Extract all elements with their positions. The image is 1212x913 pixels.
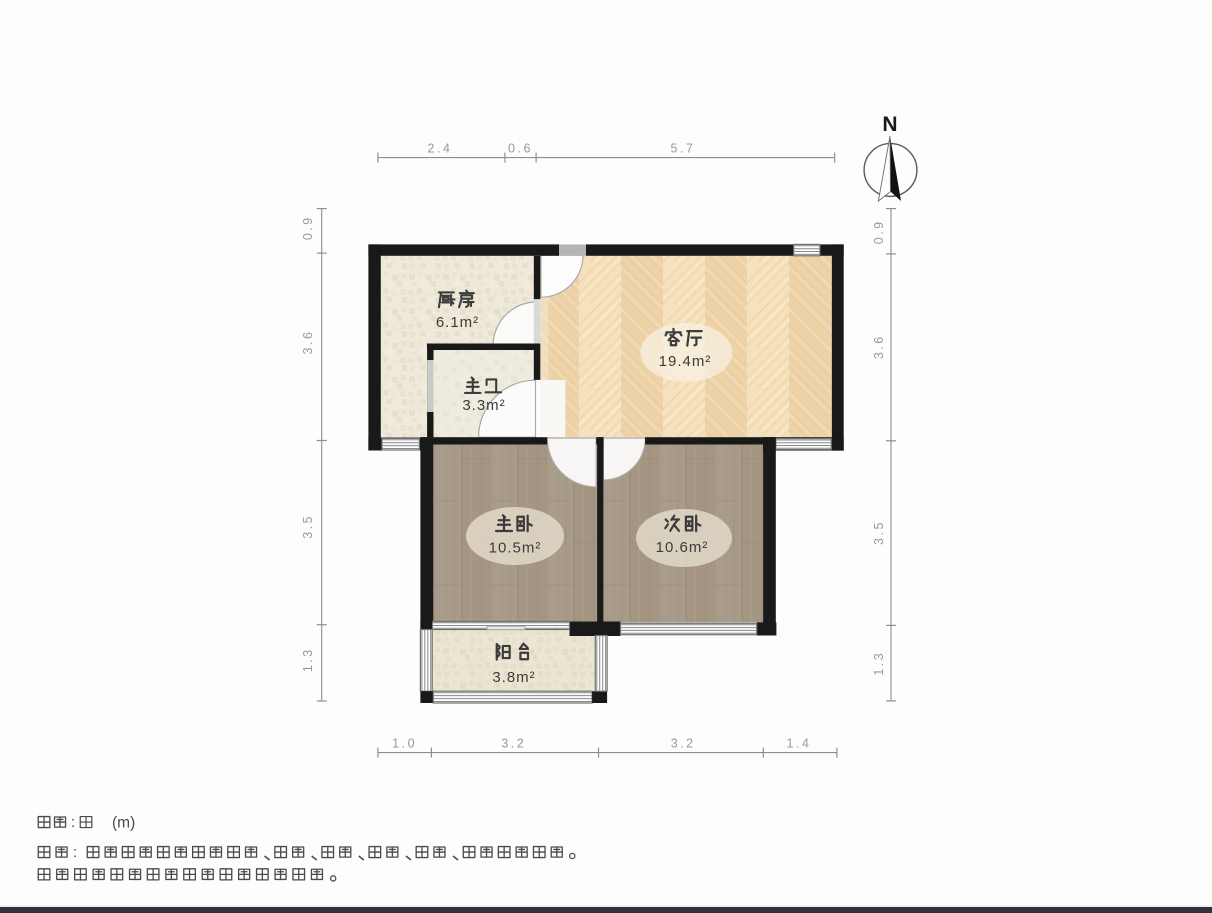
svg-text:0.9: 0.9	[301, 215, 315, 240]
svg-text:3.6: 3.6	[872, 334, 886, 359]
svg-text:3.2: 3.2	[501, 736, 526, 750]
svg-text:1.3: 1.3	[301, 647, 315, 672]
svg-text:0.6: 0.6	[508, 141, 533, 155]
svg-text:0.9: 0.9	[872, 219, 886, 244]
svg-text:3.5: 3.5	[872, 520, 886, 545]
svg-text:1.3: 1.3	[872, 651, 886, 676]
svg-text:1.0: 1.0	[392, 736, 417, 750]
svg-text:19.4m²: 19.4m²	[659, 353, 712, 370]
svg-text:10.6m²: 10.6m²	[656, 539, 709, 556]
svg-text:3.6: 3.6	[301, 330, 315, 355]
svg-text:3.3m²: 3.3m²	[462, 397, 505, 414]
svg-text::: :	[71, 814, 75, 831]
svg-text:N: N	[882, 113, 897, 136]
svg-text:10.5m²: 10.5m²	[489, 539, 542, 556]
svg-text:5.7: 5.7	[671, 141, 696, 155]
svg-text:2.4: 2.4	[428, 141, 453, 155]
svg-text:3.2: 3.2	[671, 736, 696, 750]
svg-text:6.1m²: 6.1m²	[436, 314, 479, 331]
svg-text:3.5: 3.5	[301, 514, 315, 539]
svg-text:(m): (m)	[112, 815, 135, 832]
svg-text:1.4: 1.4	[787, 736, 812, 750]
svg-text:3.8m²: 3.8m²	[492, 669, 535, 686]
svg-text::: :	[73, 844, 77, 861]
